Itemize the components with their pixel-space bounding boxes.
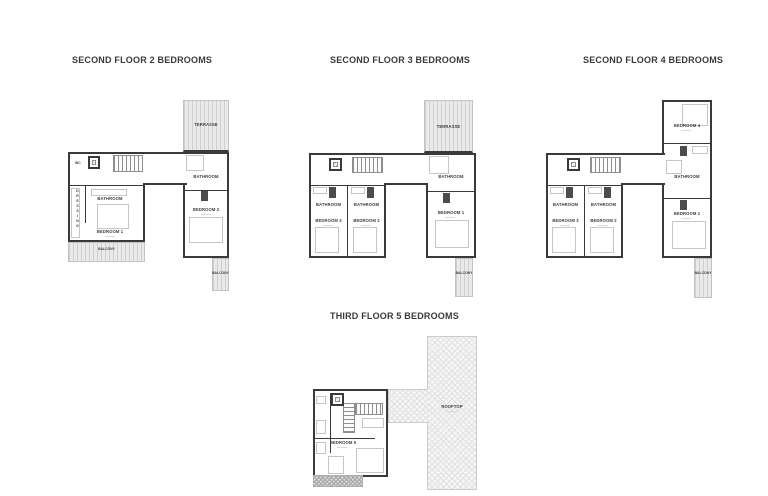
bed [315, 227, 339, 253]
floor-plan-3-bedrooms: TERRASSE BALCONY BATHROOM BATHROOM BEDRO… [305, 98, 480, 300]
closet [566, 187, 573, 198]
bed [672, 221, 706, 249]
closet [367, 187, 374, 198]
bathroom-label: BATHROOM [184, 175, 228, 179]
bedroom-5-label: BEDROOM 5 [318, 441, 368, 445]
closet [604, 187, 611, 198]
terrace-strip-area [313, 475, 363, 487]
area-note [201, 214, 211, 215]
bedroom-3-label: BEDROOM 3 [548, 219, 583, 223]
elevator-icon [567, 158, 580, 171]
area-note [681, 130, 691, 131]
area-note [446, 411, 458, 412]
rooftop-label: ROOFTOP [427, 405, 477, 409]
area-note [361, 225, 371, 226]
area-note [560, 225, 570, 226]
interior-wall [584, 185, 585, 256]
desk [362, 418, 384, 428]
closet [443, 193, 450, 203]
balcony-area [694, 258, 712, 298]
stairs-icon [352, 157, 383, 173]
area-note [323, 225, 333, 226]
bedroom-2-label: BEDROOM 2 [586, 219, 621, 223]
bed [552, 227, 576, 253]
vanity [313, 187, 327, 194]
vanity [692, 146, 708, 154]
interior-wall [315, 438, 375, 439]
bathroom-label: BATHROOM [548, 203, 583, 207]
floor-plan-5-bedrooms: ROOFTOP BEDROOM 5 [310, 330, 480, 492]
interior-wall [664, 143, 710, 144]
bedroom-2-label: BEDROOM 2 [349, 219, 384, 223]
bedroom-1-label: BEDROOM 1 [664, 212, 710, 216]
fixture [316, 420, 326, 434]
closet [680, 200, 687, 210]
bed [590, 227, 614, 253]
shower [429, 156, 449, 174]
bed [356, 448, 384, 473]
stairs-icon [343, 403, 355, 433]
interior-wall [85, 185, 86, 223]
interior-wall [347, 185, 348, 256]
balcony-right-label: BALCONY [206, 272, 235, 275]
floor-plan-4-bedrooms: BALCONY BEDROOM 4 BATHROOM BEDROOM 1 BAT… [542, 98, 720, 303]
elevator-icon [88, 156, 100, 169]
floor-plans-sheet: SECOND FLOOR 2 BEDROOMS SECOND FLOOR 3 B… [0, 0, 768, 496]
bedroom-2-label: BEDROOM 2 [184, 208, 228, 212]
rooftop-strip-area [388, 389, 428, 423]
vanity [351, 187, 365, 194]
balcony-left-label: BALCONY [68, 248, 145, 251]
area-note [445, 217, 455, 218]
plan-title-second-floor-3-bedrooms: SECOND FLOOR 3 BEDROOMS [330, 55, 470, 65]
interior-wall [428, 191, 474, 192]
closet [680, 146, 687, 156]
area-note [105, 236, 115, 237]
bathroom-label: BATHROOM [349, 203, 384, 207]
balcony-label: BALCONY [688, 272, 718, 275]
area-note [337, 447, 347, 448]
closet [329, 187, 336, 198]
balcony-left-area [68, 242, 145, 262]
balcony-label: BALCONY [450, 272, 478, 275]
bedroom-3-label: BEDROOM 3 [311, 219, 346, 223]
shower [186, 155, 204, 171]
bed [353, 227, 377, 253]
dressing-label: DRESSING [75, 189, 79, 229]
plan-title-second-floor-2-bedrooms: SECOND FLOOR 2 BEDROOMS [72, 55, 212, 65]
bathroom-label: BATHROOM [311, 203, 346, 207]
bathroom-corner [328, 456, 344, 474]
vanity [588, 187, 602, 194]
bed [97, 204, 129, 229]
balcony-area [455, 258, 473, 297]
bed [189, 217, 223, 243]
interior-wall [664, 198, 710, 199]
wc-label: WC [75, 162, 89, 165]
closet [201, 191, 208, 201]
shower [666, 160, 682, 174]
terrasse-label: TERRASSE [424, 125, 473, 129]
interior-wall [70, 185, 143, 186]
corridor [384, 153, 428, 185]
bathroom-label: BATHROOM [89, 197, 131, 201]
bedroom-1-label: BEDROOM 1 [428, 211, 474, 215]
terrasse-label: TERRASSE [183, 123, 229, 127]
rooftop-area [427, 336, 477, 490]
stairs-icon [113, 155, 143, 172]
area-note [681, 218, 691, 219]
corridor [143, 152, 187, 185]
stairs-landing-icon [355, 403, 383, 415]
bathroom-label: BATHROOM [586, 203, 621, 207]
elevator-icon [331, 393, 344, 406]
bathtub [91, 189, 127, 196]
elevator-icon [329, 158, 342, 171]
bathroom-label: BATHROOM [664, 175, 710, 179]
corridor [621, 153, 665, 185]
vanity [550, 187, 564, 194]
stairs-icon [590, 157, 621, 173]
bedroom-4-label: BEDROOM 4 [664, 124, 710, 128]
floor-plan-2-bedrooms: TERRASSE BALCONY BALCONY WC DRESSING BAT… [65, 98, 235, 293]
bed [435, 220, 469, 248]
bedroom-1-label: BEDROOM 1 [89, 230, 131, 234]
area-note [598, 225, 608, 226]
plan-title-second-floor-4-bedrooms: SECOND FLOOR 4 BEDROOMS [583, 55, 723, 65]
bathroom-label: BATHROOM [428, 175, 474, 179]
plan-title-third-floor-5-bedrooms: THIRD FLOOR 5 BEDROOMS [330, 311, 459, 321]
fixture [316, 396, 326, 404]
